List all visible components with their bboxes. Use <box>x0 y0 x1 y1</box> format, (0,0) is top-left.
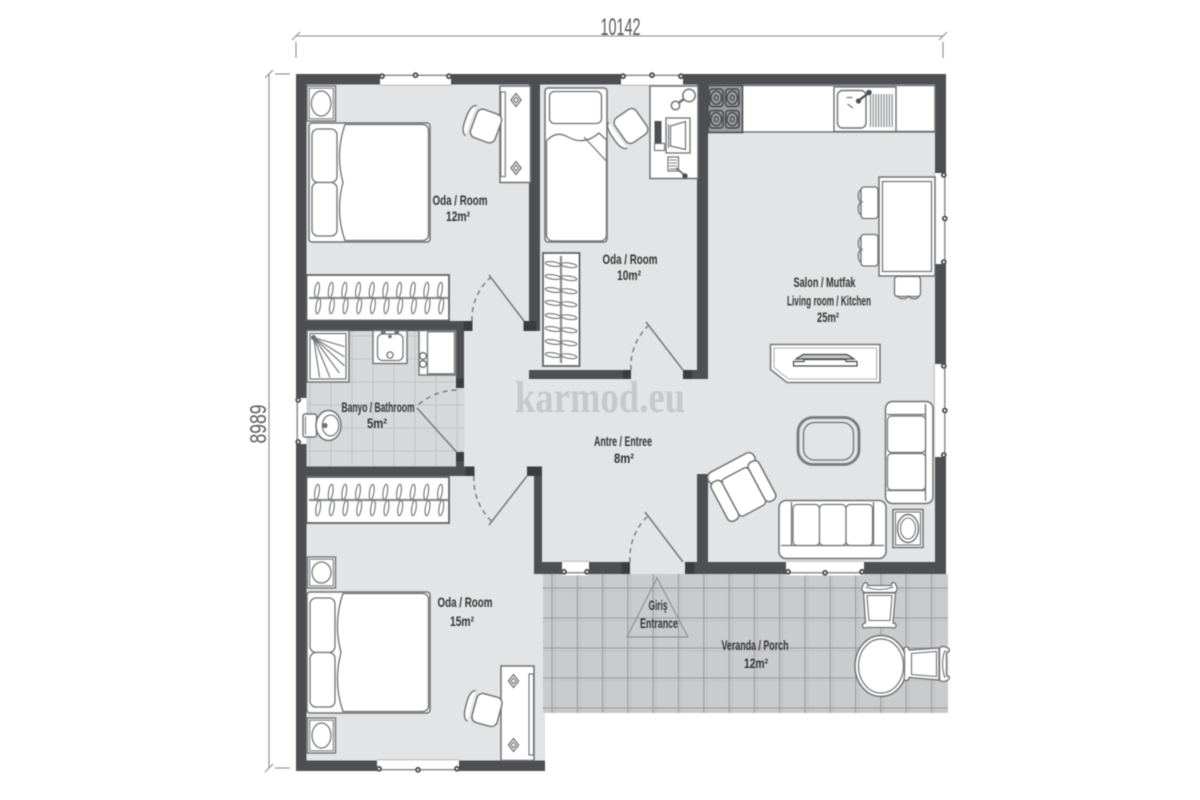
svg-text:5m²: 5m² <box>367 415 387 431</box>
svg-text:Salon / Mutfak: Salon / Mutfak <box>794 274 856 290</box>
svg-text:Entrance: Entrance <box>640 616 678 631</box>
svg-text:Antre / Entree: Antre / Entree <box>594 433 652 449</box>
svg-text:8m²: 8m² <box>614 450 634 466</box>
svg-text:12m²: 12m² <box>744 655 768 671</box>
svg-text:Oda / Room: Oda / Room <box>433 192 488 208</box>
svg-text:Oda / Room: Oda / Room <box>438 594 493 610</box>
svg-text:10m²: 10m² <box>617 267 641 283</box>
svg-text:karmod.eu: karmod.eu <box>515 373 685 422</box>
svg-text:Veranda / Porch: Veranda / Porch <box>722 637 789 653</box>
svg-text:12m²: 12m² <box>446 208 470 224</box>
svg-text:Banyo / Bathroom: Banyo / Bathroom <box>342 399 415 415</box>
svg-text:10142: 10142 <box>601 14 641 41</box>
svg-text:25m²: 25m² <box>817 309 839 325</box>
svg-text:8989: 8989 <box>245 405 271 444</box>
svg-text:Living room / Kitchen: Living room / Kitchen <box>787 293 871 309</box>
svg-text:Giriş: Giriş <box>649 598 668 613</box>
svg-text:Oda / Room: Oda / Room <box>603 251 658 267</box>
svg-text:15m²: 15m² <box>450 613 474 629</box>
